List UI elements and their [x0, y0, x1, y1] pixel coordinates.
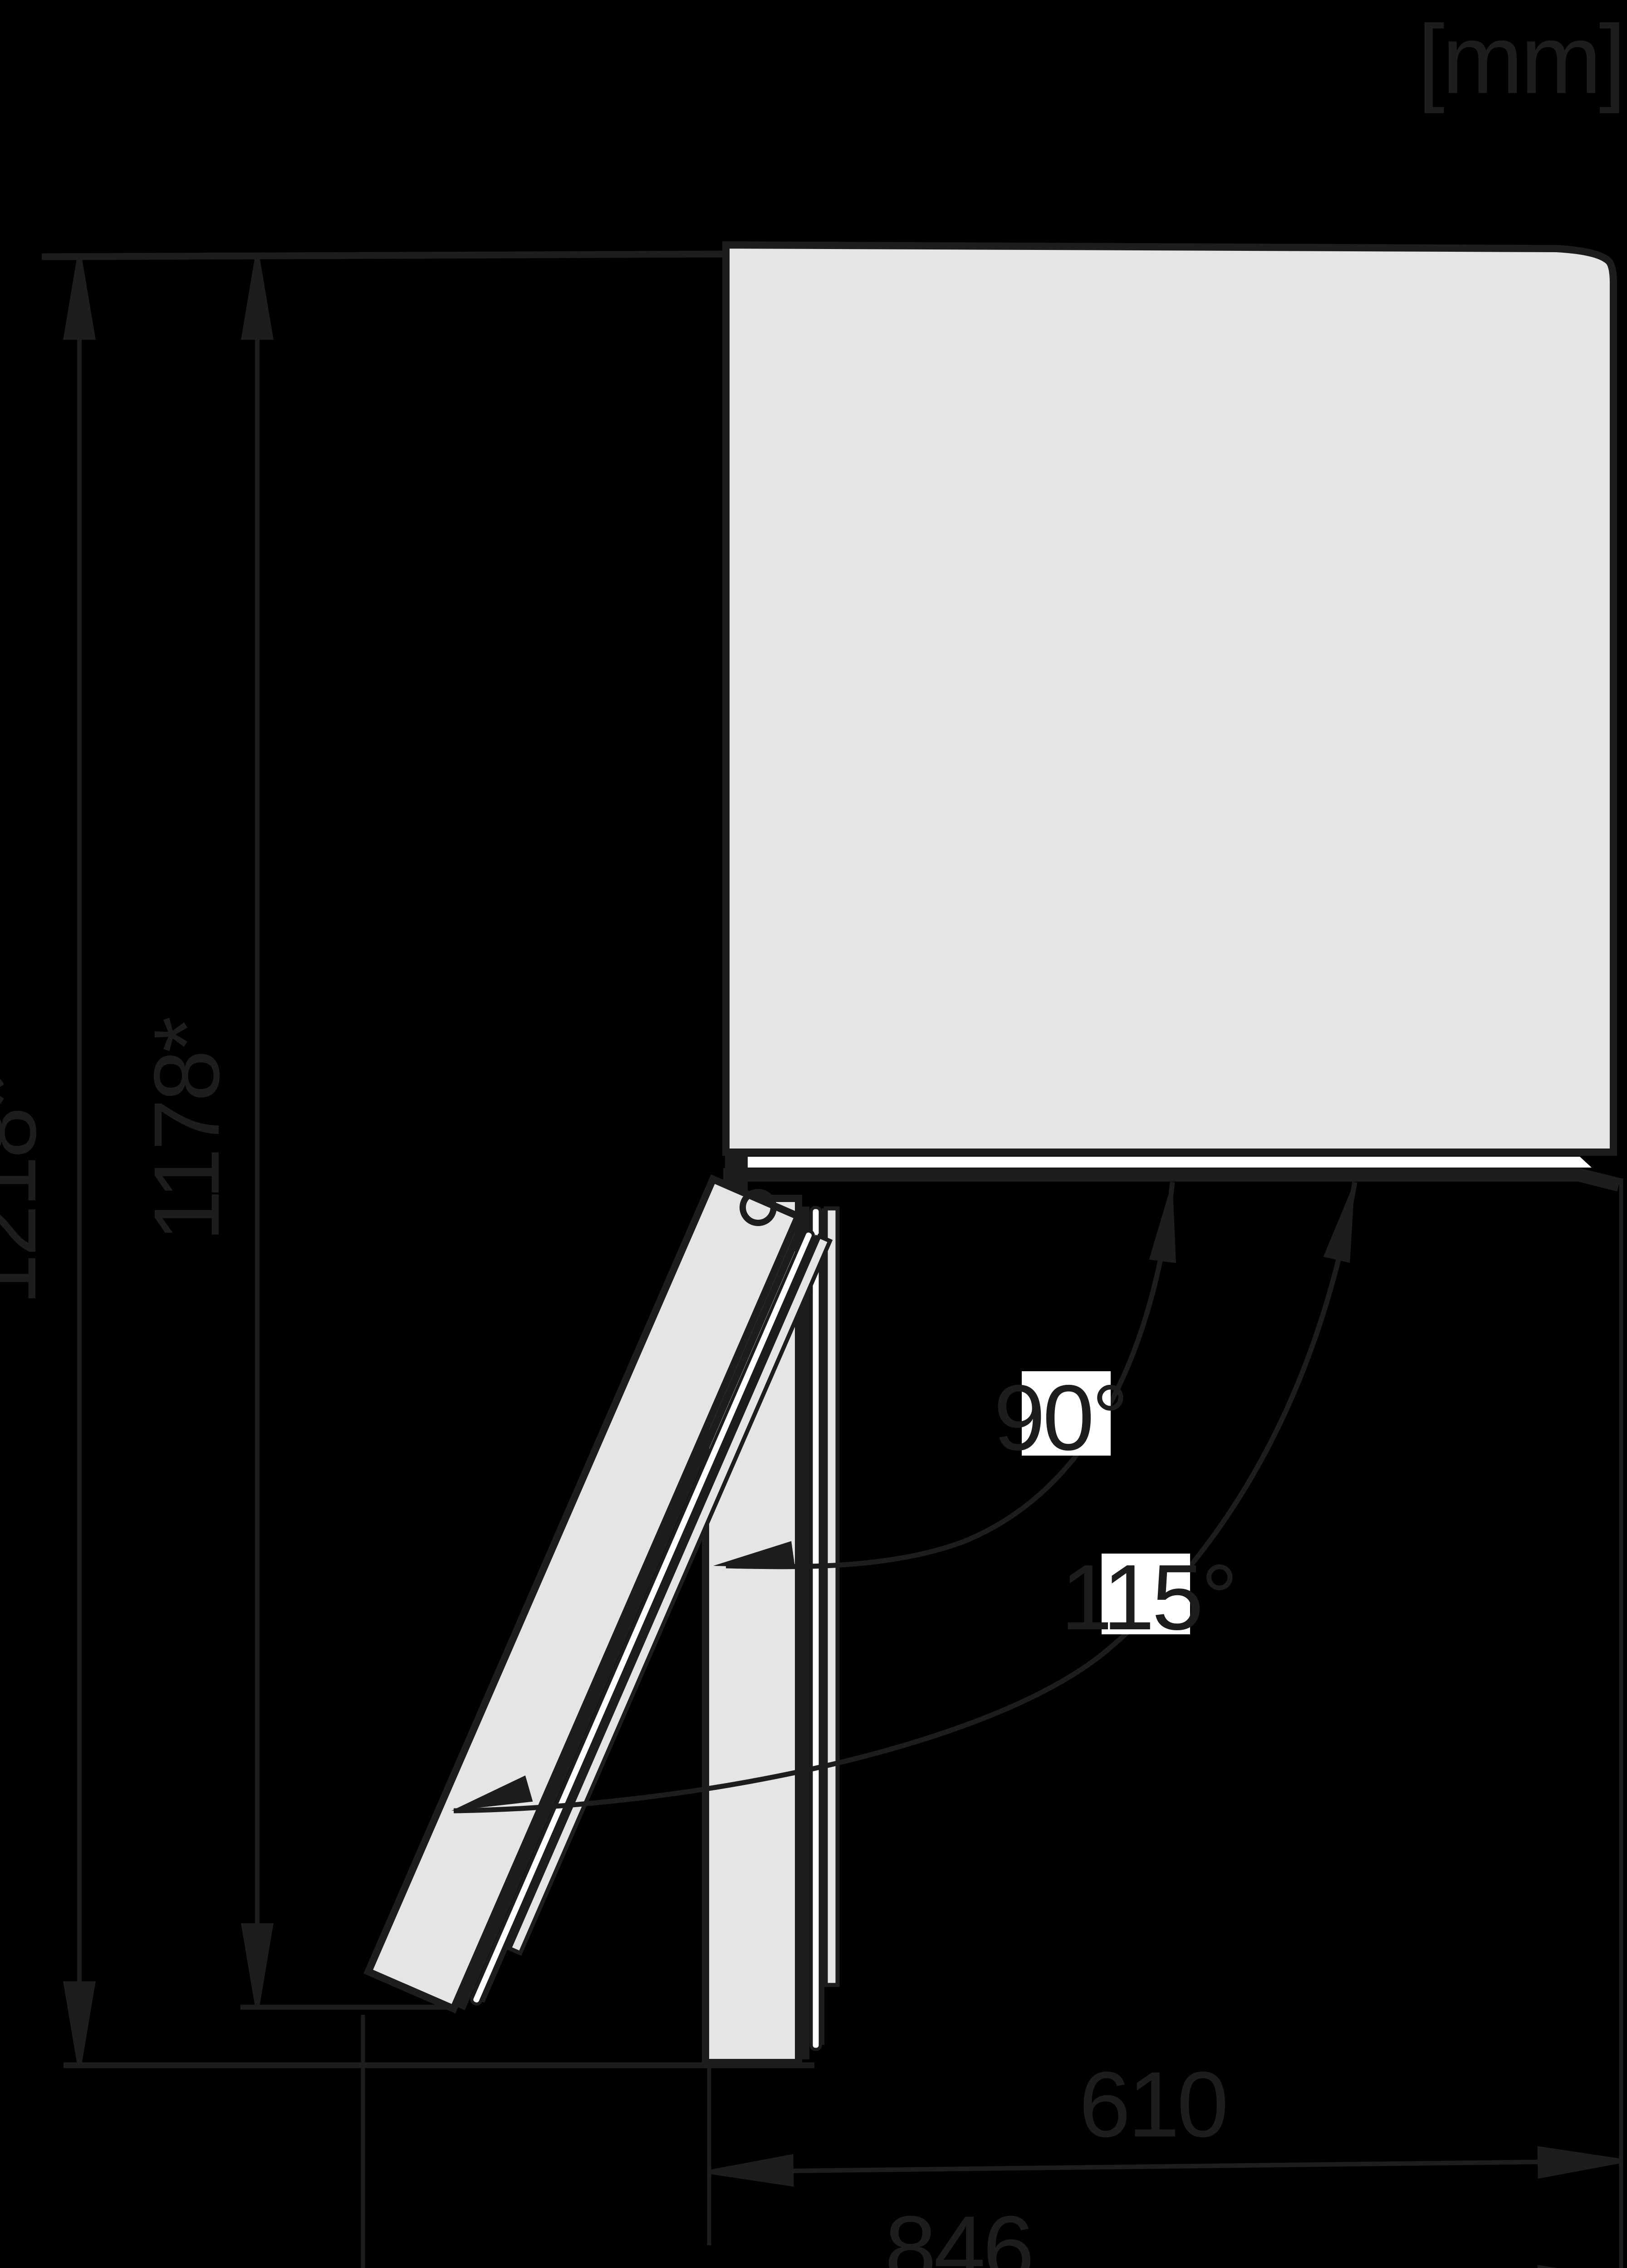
dim-label-1178: 1178* — [135, 1017, 239, 1242]
dim-label-610: 610 — [1079, 2053, 1226, 2156]
cabinet-front-highlight — [726, 1157, 1592, 1168]
extension-top — [42, 254, 726, 257]
dim-846-arrow-right — [1540, 2266, 1621, 2268]
angle-label-115: 115° — [1061, 1545, 1235, 1649]
clearance-diagram: [mm] 1218* 1178* 90° 115° 610 846 — [0, 0, 1627, 2268]
dim-610-arrow-right — [1540, 2147, 1621, 2176]
dim-line-610 — [712, 2161, 1620, 2172]
arc-115-arrowhead-start — [1323, 1178, 1368, 1263]
dim-label-846: 846 — [885, 2197, 1032, 2268]
dim-1218-arrow-bottom — [66, 1984, 93, 2064]
dim-1178-arrow-top — [244, 257, 271, 337]
dim-label-1218: 1218* — [0, 1075, 55, 1305]
appliance-cabinet — [723, 245, 1619, 1191]
angle-label-90: 90° — [994, 1366, 1126, 1470]
unit-label: [mm] — [1417, 5, 1623, 114]
dim-610-arrow-left — [710, 2157, 791, 2185]
dim-1218-arrow-top — [66, 257, 93, 337]
arc-90-arrowhead-start — [1149, 1179, 1186, 1263]
dim-1178-arrow-bottom — [244, 1926, 271, 2006]
cabinet-body — [726, 245, 1613, 1152]
